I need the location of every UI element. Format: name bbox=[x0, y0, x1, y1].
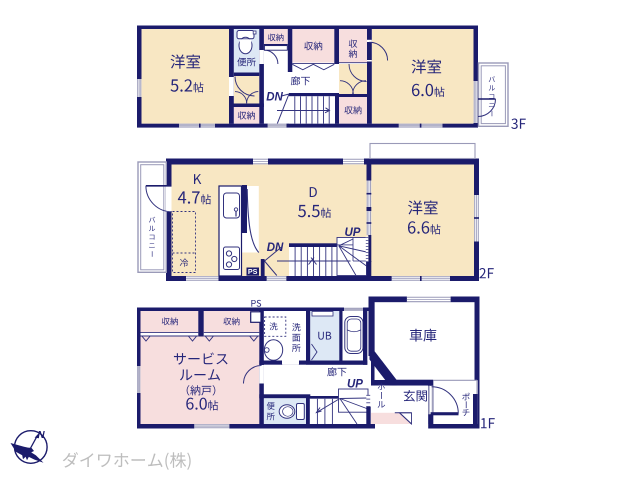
svg-text:DN: DN bbox=[267, 242, 284, 254]
svg-text:N: N bbox=[37, 430, 45, 441]
svg-text:UP: UP bbox=[347, 379, 363, 391]
svg-text:PS: PS bbox=[248, 267, 258, 276]
svg-text:DN: DN bbox=[266, 92, 283, 104]
svg-text:UP: UP bbox=[345, 227, 361, 239]
